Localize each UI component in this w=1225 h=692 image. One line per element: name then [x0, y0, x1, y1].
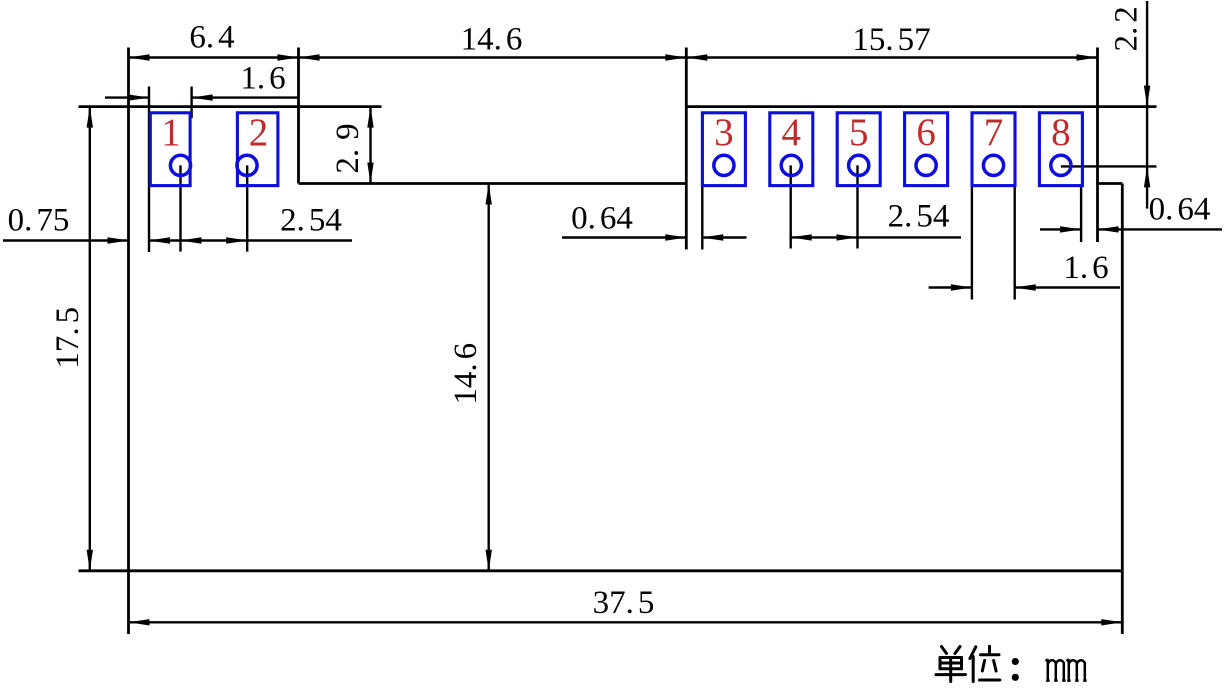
- svg-text:2.9: 2.9: [330, 123, 366, 173]
- svg-text:3: 3: [714, 111, 734, 154]
- svg-text:2.2: 2.2: [1108, 6, 1144, 51]
- svg-text:0.64: 0.64: [571, 200, 633, 236]
- svg-text:2.54: 2.54: [280, 202, 342, 238]
- svg-text:6.4: 6.4: [189, 20, 234, 56]
- svg-text:2: 2: [249, 111, 269, 154]
- svg-text:5: 5: [849, 111, 869, 154]
- svg-text:14.6: 14.6: [448, 343, 484, 405]
- svg-text:0.75: 0.75: [8, 202, 70, 238]
- svg-text:4: 4: [782, 111, 802, 154]
- svg-text:17.5: 17.5: [50, 307, 86, 369]
- svg-text:15.57: 15.57: [852, 22, 930, 58]
- svg-text:0.64: 0.64: [1149, 192, 1211, 228]
- svg-text:14.6: 14.6: [461, 22, 523, 58]
- svg-text:6: 6: [916, 111, 936, 154]
- svg-text:1.6: 1.6: [240, 60, 285, 96]
- svg-text:8: 8: [1051, 111, 1071, 154]
- svg-text:1.6: 1.6: [1063, 250, 1108, 286]
- svg-text:37.5: 37.5: [593, 585, 655, 621]
- svg-text:7: 7: [984, 111, 1004, 154]
- svg-text:1: 1: [161, 111, 181, 154]
- svg-text:2.54: 2.54: [888, 198, 950, 234]
